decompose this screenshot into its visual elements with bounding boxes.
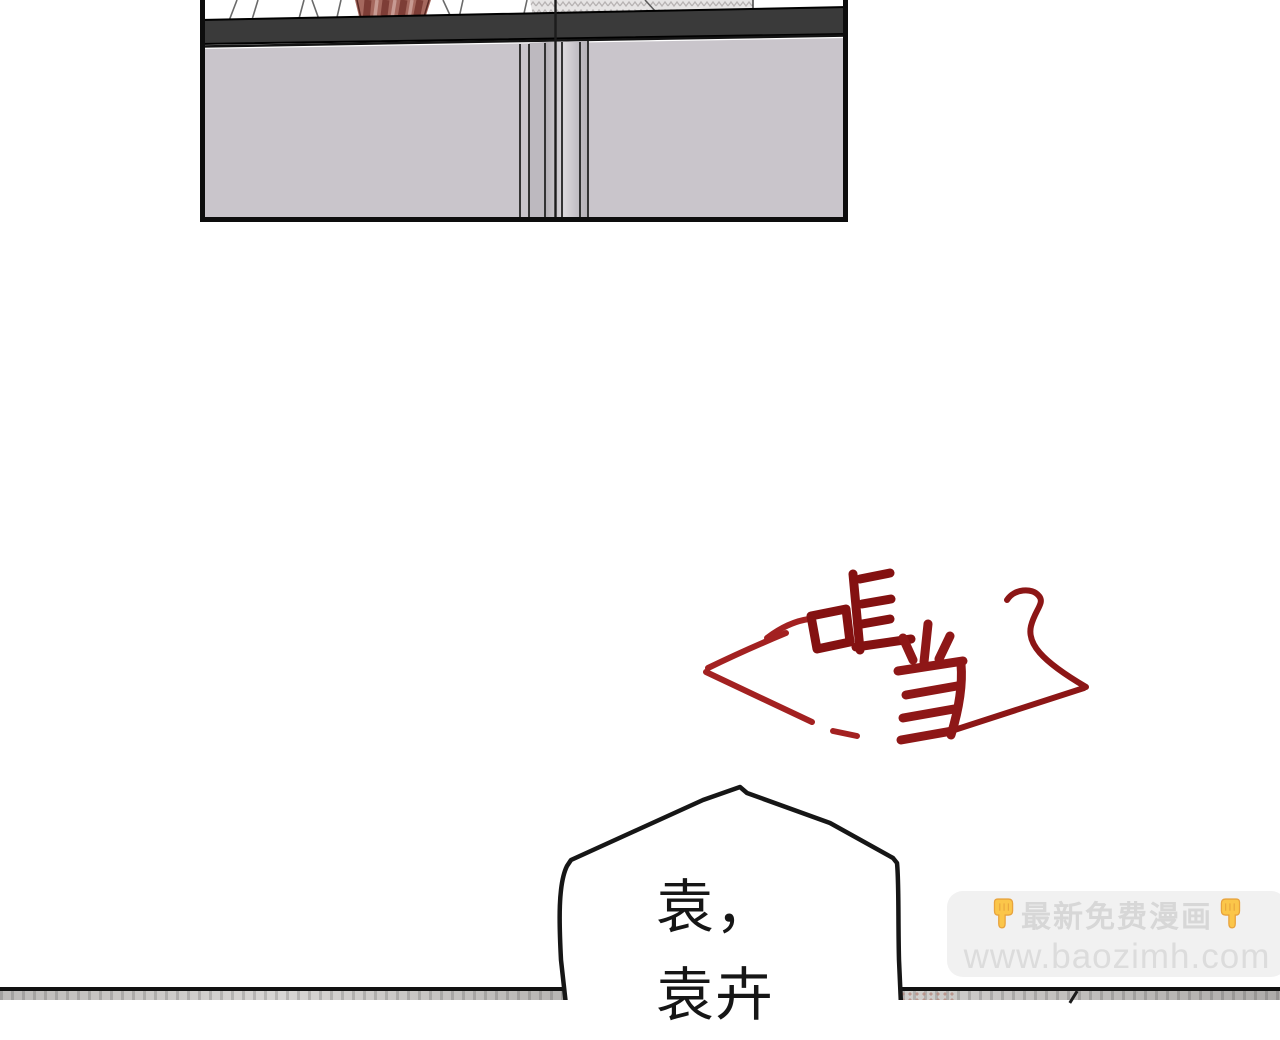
sfx-burst-strokes (706, 619, 857, 736)
cabinet-panel-art (200, 0, 848, 222)
watermark-title-row: 最新免费漫画 (990, 892, 1244, 936)
watermark-title: 最新免费漫画 (1021, 892, 1213, 936)
pointing-down-icon (1218, 898, 1244, 930)
sfx-char-kuang (811, 573, 911, 650)
speech-line-2: 袁卉 (656, 952, 816, 1040)
watermark: 最新免费漫画 www.baozimh.com (947, 891, 1280, 977)
pointing-down-icon (990, 898, 1016, 930)
watermark-url: www.baozimh.com (964, 937, 1271, 977)
cabinet-front (200, 38, 848, 217)
sfx-strokes-art (668, 550, 1098, 755)
comic-page: { "page": { "background": "#ffffff" }, "… (0, 0, 1280, 1000)
speech-line-1: 袁， (656, 864, 816, 952)
sfx-char-dang (898, 624, 963, 740)
sfx-clang: 哐当 (668, 550, 1098, 755)
comic-panel-cabinet (200, 0, 848, 222)
speech-bubble-text: 袁， 袁卉 (656, 864, 816, 1040)
